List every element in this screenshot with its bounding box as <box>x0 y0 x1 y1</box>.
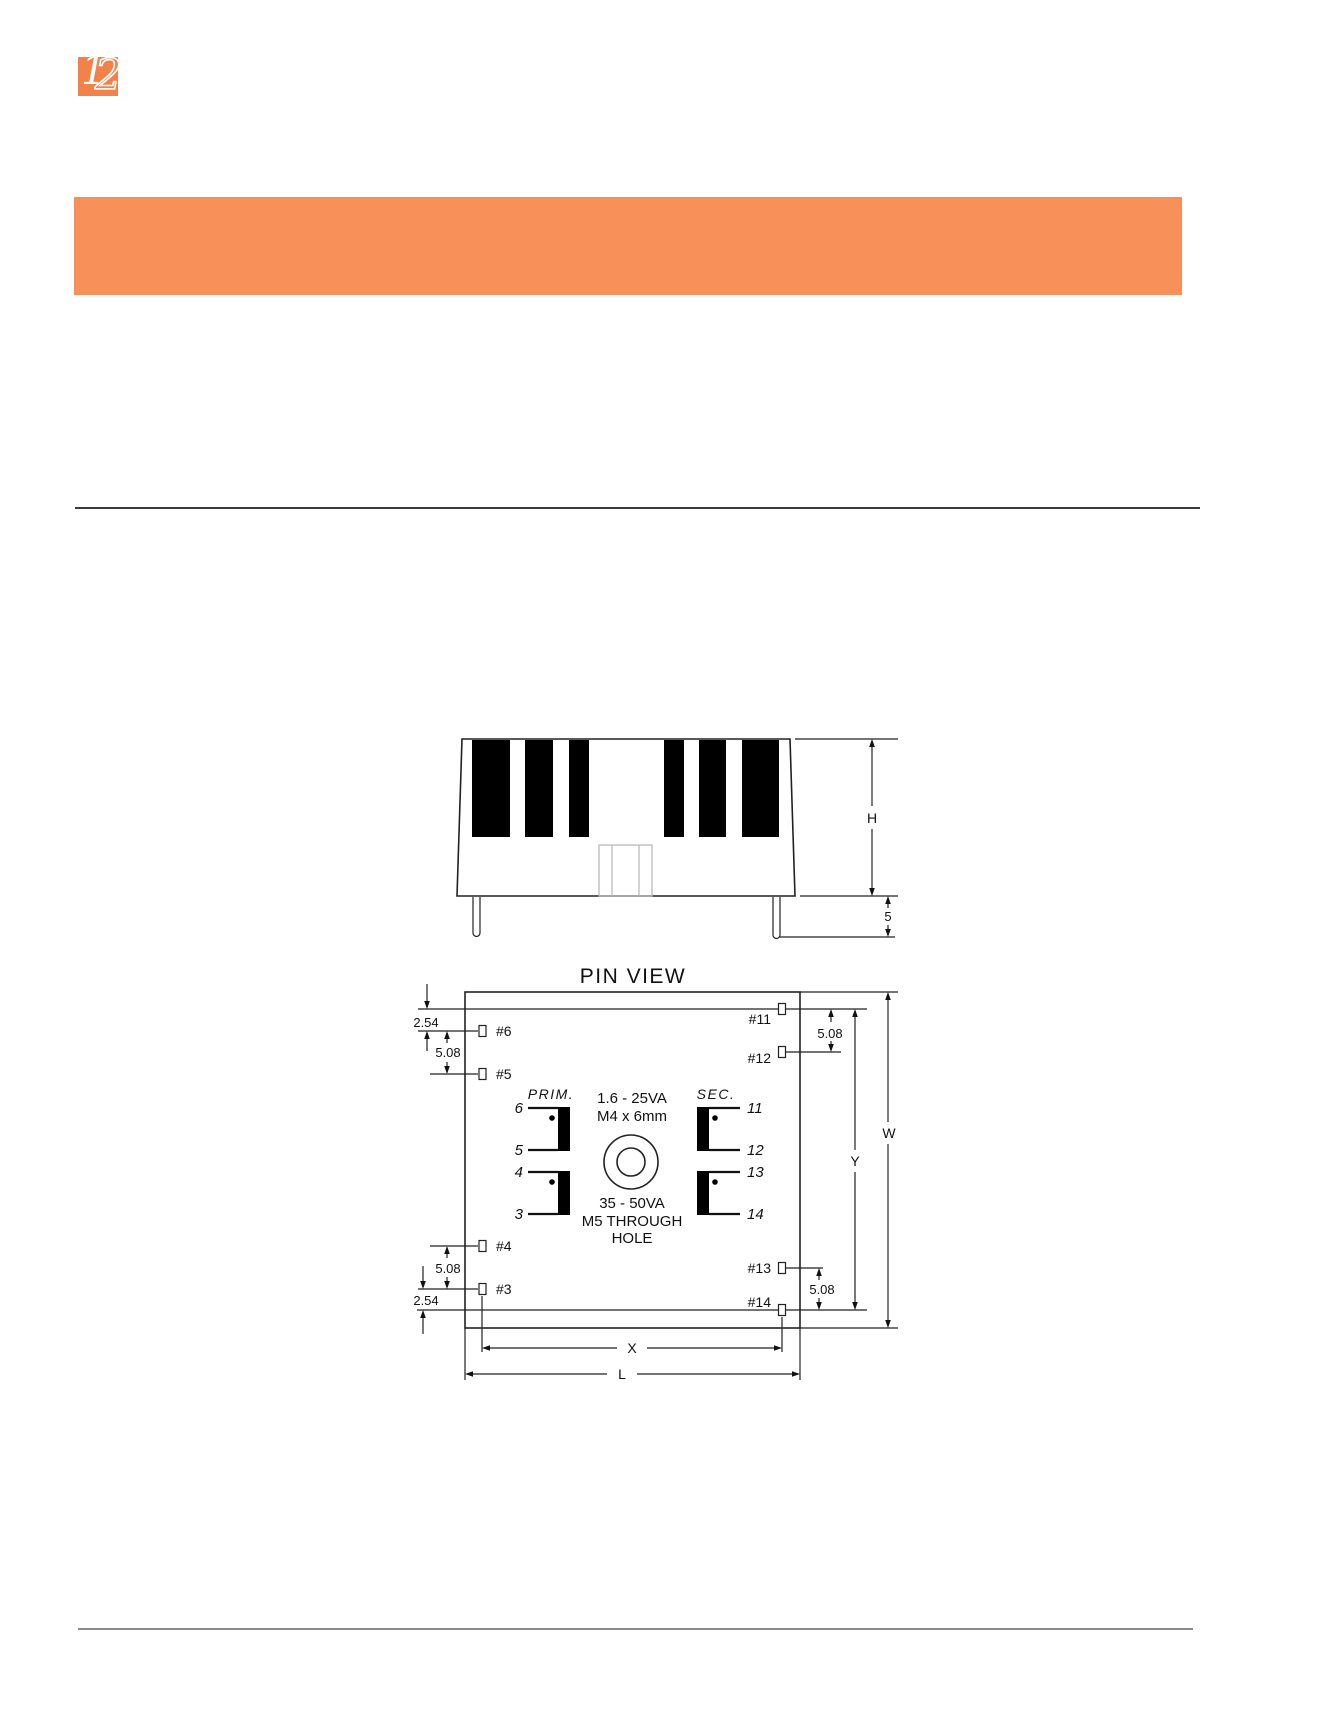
pad-label-13: #13 <box>748 1260 772 1276</box>
note-large-line2: M5 THROUGH <box>582 1213 683 1230</box>
svg-text:4: 4 <box>515 1164 523 1181</box>
pad-label-6: #6 <box>496 1023 512 1039</box>
svg-text:14: 14 <box>747 1206 764 1223</box>
note-small-va: 1.6 - 25VA <box>597 1090 667 1107</box>
mounting-pins-side <box>473 897 780 939</box>
pad-label-4: #4 <box>496 1238 512 1254</box>
svg-text:X: X <box>627 1340 637 1356</box>
dim-pitch-bottom-left-2-54: 2.54 <box>413 1266 438 1334</box>
dim-pitch-bottom-left-5-08: 5.08 <box>435 1246 460 1289</box>
svg-text:2.54: 2.54 <box>413 1015 438 1030</box>
primary-label: PRIM. <box>528 1086 574 1102</box>
dim-pin-length-5: 5 <box>780 896 895 937</box>
pad-label-14: #14 <box>748 1294 772 1310</box>
svg-text:6: 6 <box>515 1100 524 1117</box>
svg-text:11: 11 <box>747 1100 763 1117</box>
svg-text:5: 5 <box>515 1142 524 1159</box>
note-small-screw: M4 x 6mm <box>597 1108 667 1125</box>
transformer-drawing: H 5 PIN VIEW <box>0 0 1318 1712</box>
pin-view: PIN VIEW <box>413 965 898 1382</box>
svg-text:W: W <box>882 1125 896 1141</box>
side-view: H 5 <box>457 739 898 939</box>
dim-pitch-top-right-5-08: 5.08 <box>817 1009 842 1052</box>
pin-pad-labels: #6 #5 #4 #3 #11 #12 #13 #14 <box>496 1011 771 1310</box>
svg-text:13: 13 <box>747 1164 764 1181</box>
footprint-outline <box>465 992 800 1328</box>
winding-schematic: PRIM. SEC. 1.6 - 25VA M4 x 6mm 35 - 50VA… <box>515 1086 765 1247</box>
dim-pin-span-Y: Y <box>850 1009 860 1310</box>
dim-height-H: H <box>795 739 898 896</box>
svg-text:Y: Y <box>850 1153 860 1169</box>
dim-pitch-top-left-2-54: 2.54 <box>413 984 438 1051</box>
svg-text:3: 3 <box>515 1206 524 1223</box>
mount-hole-inner <box>617 1148 645 1176</box>
dim-pitch-top-left-5-08: 5.08 <box>435 1031 460 1074</box>
pin-view-title: PIN VIEW <box>580 965 687 988</box>
pad-label-12: #12 <box>748 1050 772 1066</box>
pad-label-11: #11 <box>749 1011 772 1027</box>
pin-pads <box>479 1004 786 1316</box>
note-large-line3: HOLE <box>612 1230 653 1247</box>
cooling-fin-bars <box>472 740 779 837</box>
svg-text:2.54: 2.54 <box>413 1293 438 1308</box>
svg-text:L: L <box>618 1366 626 1382</box>
pad-label-5: #5 <box>496 1066 512 1082</box>
svg-text:5.08: 5.08 <box>809 1282 834 1297</box>
datasheet-page: 1 2 <box>0 0 1318 1712</box>
mount-hole-outer <box>604 1135 658 1189</box>
svg-text:5.08: 5.08 <box>435 1045 460 1060</box>
center-window <box>599 845 652 896</box>
dim-label-5: 5 <box>884 909 891 924</box>
pad-label-3: #3 <box>496 1281 512 1297</box>
dim-label-H: H <box>867 810 877 826</box>
svg-text:12: 12 <box>747 1142 764 1159</box>
dim-pin-span-X: X <box>482 1296 782 1356</box>
note-large-va: 35 - 50VA <box>599 1195 665 1212</box>
svg-text:5.08: 5.08 <box>817 1026 842 1041</box>
dim-pitch-bottom-right-5-08: 5.08 <box>809 1268 834 1310</box>
secondary-label: SEC. <box>697 1086 736 1102</box>
svg-text:5.08: 5.08 <box>435 1261 460 1276</box>
dim-width-W: W <box>800 992 898 1328</box>
secondary-winding-symbols: 11 12 13 14 <box>697 1100 764 1223</box>
primary-winding-symbols: 6 5 4 3 <box>515 1100 570 1223</box>
